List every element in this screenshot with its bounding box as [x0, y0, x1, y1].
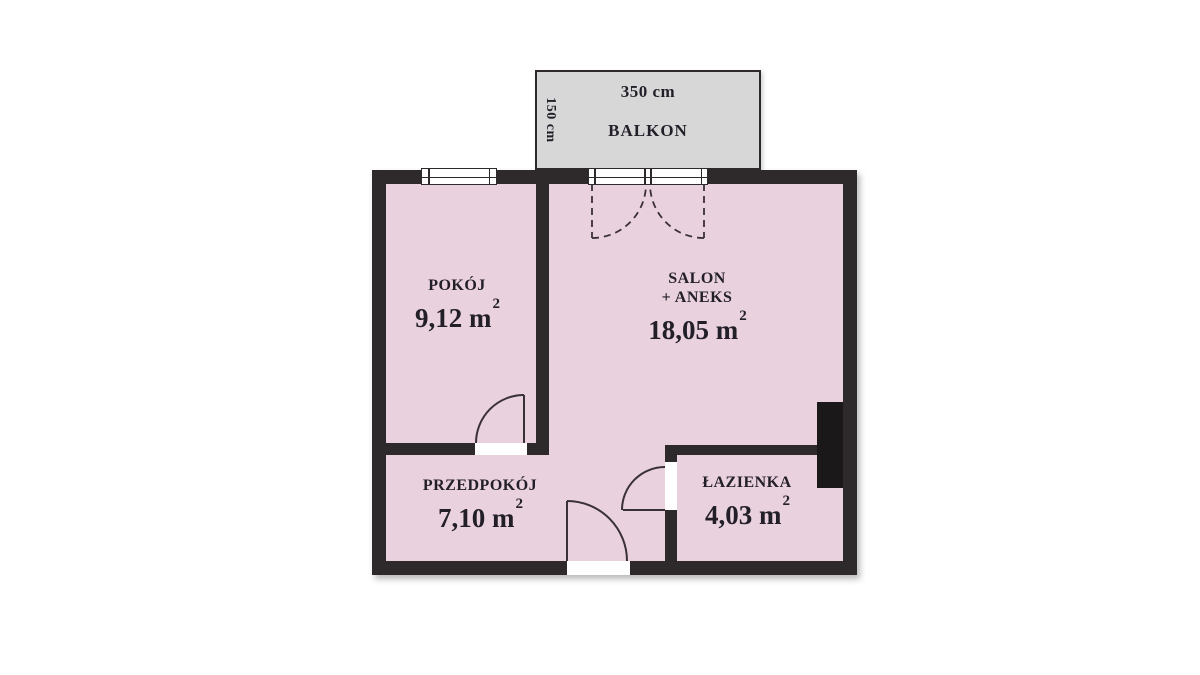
- floor-plan: 350 cm BALKON 150 cm: [0, 0, 1200, 675]
- room-label-salon: SALON + ANEKS 18,05 m2: [648, 269, 746, 346]
- room-name: SALON: [648, 269, 746, 288]
- room-area: 7,10 m2: [423, 498, 537, 534]
- balcony-label: BALKON: [537, 121, 759, 141]
- room-label-lazienka: ŁAZIENKA 4,03 m2: [702, 473, 791, 531]
- wall-pokoj-hall-left: [386, 443, 475, 455]
- bathroom-door-opening: [665, 462, 677, 510]
- balcony-door-glass-line: [589, 177, 707, 179]
- balcony-area: 350 cm BALKON 150 cm: [535, 70, 761, 170]
- wall-pokoj-hall-right: [527, 443, 549, 455]
- window-glass-line: [422, 177, 496, 179]
- entrance-door-opening: [567, 561, 630, 575]
- room-label-przedpokoj: PRZEDPOKÓJ 7,10 m2: [423, 476, 537, 534]
- wall-bath-bottom: [665, 510, 677, 561]
- window-symbol: [421, 168, 497, 185]
- room-name: ŁAZIENKA: [702, 473, 791, 492]
- wall-pokoj-salon: [536, 184, 549, 455]
- pokoj-door-opening: [475, 443, 527, 455]
- room-name: POKÓJ: [415, 276, 499, 295]
- balcony-width-dimension: 350 cm: [537, 82, 759, 102]
- room-label-pokoj: POKÓJ 9,12 m2: [415, 276, 499, 334]
- balcony-door-symbol: [588, 168, 708, 185]
- room-area: 18,05 m2: [648, 310, 746, 346]
- room-area: 9,12 m2: [415, 298, 499, 334]
- room-name: PRZEDPOKÓJ: [423, 476, 537, 495]
- wall-bath-top: [665, 445, 677, 462]
- utility-shaft: [817, 402, 843, 488]
- room-name-line2: + ANEKS: [648, 288, 746, 307]
- room-area: 4,03 m2: [702, 495, 791, 531]
- balcony-depth-dimension: 150 cm: [542, 85, 558, 155]
- wall-salon-bath: [677, 445, 817, 455]
